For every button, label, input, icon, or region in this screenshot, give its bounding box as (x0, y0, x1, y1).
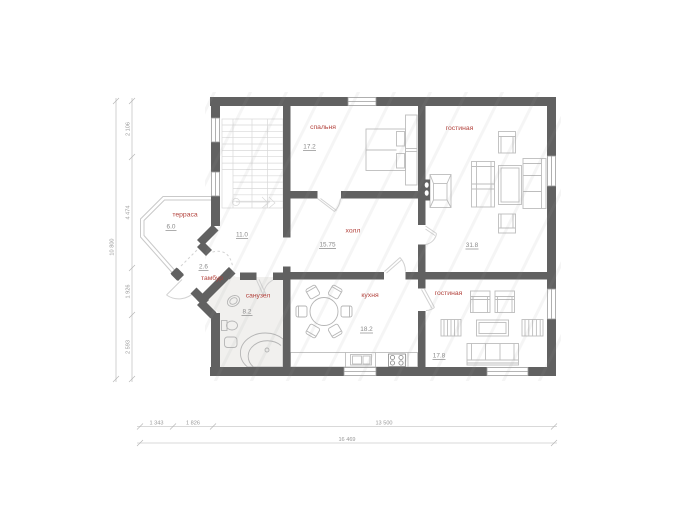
svg-text:2.6: 2.6 (199, 264, 208, 271)
svg-text:31.8: 31.8 (466, 242, 479, 249)
svg-text:терраса: терраса (172, 212, 198, 219)
svg-text:1 826: 1 826 (186, 421, 200, 427)
svg-text:18.2: 18.2 (360, 326, 373, 333)
svg-text:1 926: 1 926 (126, 285, 132, 299)
svg-text:4 474: 4 474 (126, 206, 132, 220)
svg-text:холл: холл (346, 228, 361, 235)
svg-text:17.2: 17.2 (303, 144, 316, 151)
svg-text:спальня: спальня (310, 124, 336, 131)
svg-text:10 800: 10 800 (110, 238, 116, 255)
svg-text:2 106: 2 106 (126, 122, 132, 136)
svg-text:11.0: 11.0 (236, 232, 248, 239)
svg-text:2 593: 2 593 (126, 340, 132, 354)
svg-text:1 343: 1 343 (150, 421, 164, 427)
svg-text:13 500: 13 500 (375, 421, 392, 427)
svg-text:16 469: 16 469 (338, 437, 355, 443)
svg-text:15.75: 15.75 (320, 242, 336, 249)
svg-text:тамбур: тамбур (201, 274, 223, 282)
svg-text:6.0: 6.0 (167, 224, 176, 231)
